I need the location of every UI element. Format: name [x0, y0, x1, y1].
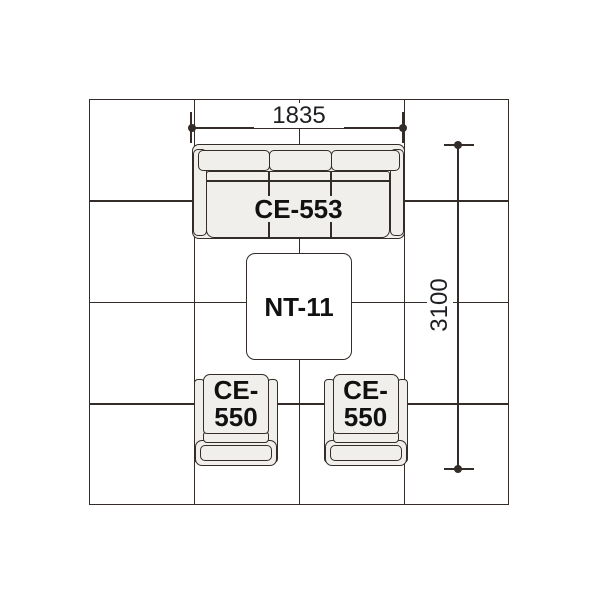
chair-label-line1: CE-: [343, 377, 388, 404]
furniture-layout-diagram: CE-553 NT-11 CE- 550 CE- 550 1835 3100: [0, 0, 600, 600]
sofa-back-cushion: [198, 150, 270, 171]
chair-backrest-cushion: [200, 445, 272, 461]
table: NT-11: [246, 253, 352, 360]
chair-seat: CE- 550: [203, 374, 269, 434]
chair-backrest: [195, 440, 277, 466]
table-label: NT-11: [264, 294, 333, 320]
chair-seat: CE- 550: [333, 374, 399, 434]
chair-label-line2: 550: [344, 404, 387, 431]
chair-right: CE- 550: [324, 374, 408, 467]
sofa-seat-edge-line: [207, 180, 389, 182]
chair-label-line2: 550: [214, 404, 257, 431]
sofa: CE-553: [192, 144, 405, 239]
sofa-back-cushion: [331, 150, 400, 171]
sofa-label: CE-553: [232, 196, 365, 222]
chair-label-line1: CE-: [214, 377, 259, 404]
dimension-width-label: 1835: [254, 103, 344, 128]
grid-line-horizontal: [90, 403, 508, 405]
dimension-line-depth: [457, 145, 459, 469]
dimension-depth-label: 3100: [427, 260, 453, 350]
chair-backrest: [325, 440, 407, 466]
sofa-back-cushion: [269, 150, 332, 171]
dimension-dot-top: [454, 141, 462, 149]
chair-left: CE- 550: [194, 374, 278, 467]
chair-backrest-cushion: [330, 445, 402, 461]
dimension-dot-bottom: [454, 465, 462, 473]
dimension-dot-left: [188, 124, 196, 132]
